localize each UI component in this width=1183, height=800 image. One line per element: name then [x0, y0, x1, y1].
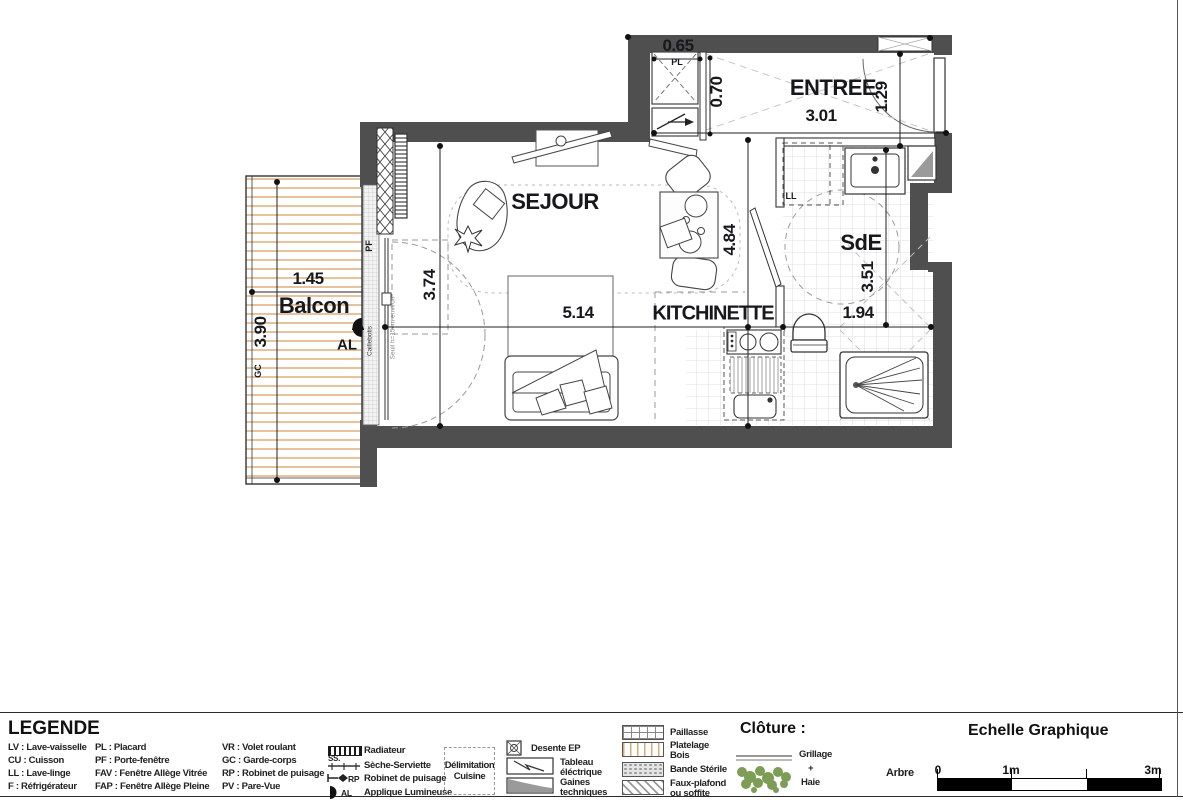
plus-label: +: [808, 764, 813, 774]
radiator-label: Radiateur: [364, 746, 405, 756]
wall-light-abbrev: AL: [341, 788, 352, 798]
dim-1-94: 1.94: [842, 303, 873, 323]
legend-item: PF : Porte-fenêtre: [95, 756, 209, 767]
legend-item: RP : Robinet de puisage: [222, 769, 324, 780]
tag-ll: LL: [786, 191, 797, 201]
scale-title: Echelle Graphique: [968, 722, 1108, 740]
legend-item: GC : Garde-corps: [222, 756, 324, 767]
tag-pf: PF: [364, 240, 374, 252]
technical-ducts-label: Gaines techniques: [560, 778, 607, 798]
page-right-border: [1177, 0, 1178, 797]
dim-0-70: 0.70: [707, 76, 727, 107]
rainwater-pipe-icon: [506, 740, 522, 756]
legend-abbrev-col2: PL : Placard PF : Porte-fenêtre FAV : Fe…: [95, 743, 209, 793]
towel-dryer-abbrev: SS.: [328, 754, 340, 764]
scale-tick: [937, 769, 938, 778]
scale-segment-black: [938, 779, 1012, 790]
wall-light-label: Applique Lumineuse: [364, 788, 452, 798]
kitchen-unit: [724, 327, 784, 420]
tag-pl: PL: [671, 57, 683, 67]
rainwater-pipe-label: Desente EP: [531, 744, 580, 754]
scale-tick: [1159, 769, 1160, 778]
legend-item: LL : Lave-linge: [8, 769, 87, 780]
floor-plan-drawing: [0, 0, 1183, 712]
room-label-balcon: Balcon: [279, 293, 349, 319]
coffee-table: [455, 181, 507, 252]
legend-title: LEGENDE: [8, 718, 100, 740]
scale-tick: [1011, 769, 1012, 778]
faux-plafond-line2: ou soffite: [670, 789, 726, 799]
dim-5-14: 5.14: [562, 303, 593, 323]
legend-item: FAV : Fenêtre Allège Vitrée: [95, 769, 209, 780]
scale-segment-white: [1012, 779, 1087, 790]
legend-item: PL : Placard: [95, 743, 209, 754]
room-label-sejour: SEJOUR: [511, 189, 598, 215]
paillasse-swatch: [622, 725, 664, 740]
radiator: [395, 134, 407, 218]
legend-item: VR : Volet roulant: [222, 743, 324, 754]
electrical-panel-icon: [506, 757, 554, 775]
bed-outline: [508, 276, 613, 364]
arbre-label: Arbre: [886, 768, 914, 778]
technical-ducts-icon: [506, 777, 554, 794]
platelage-label: Platelage Bois: [670, 741, 709, 761]
cloture-title: Clôture :: [740, 720, 806, 738]
entry-window: [878, 37, 932, 51]
dining-table: [660, 151, 718, 291]
technical-duct-box: [908, 146, 936, 180]
room-label-kitchinette: KITCHINETTE: [652, 303, 773, 326]
fence-hedge-icon: [734, 750, 796, 794]
roller-shutter-coffer: [377, 128, 393, 234]
dim-1-45: 1.45: [292, 269, 323, 289]
sofa: [505, 350, 618, 420]
dim-3-74: 3.74: [420, 269, 440, 300]
dim-4-84: 4.84: [720, 224, 740, 255]
platelage-line2: Bois: [670, 751, 709, 761]
dim-1-29: 1.29: [872, 81, 892, 112]
platelage-swatch: [622, 742, 664, 757]
legend-abbrev-col1: LV : Lave-vaisselle CU : Cuisson LL : La…: [8, 743, 87, 793]
tag-caillebotis: Caillebotis: [367, 326, 374, 356]
room-label-entree: ENTREE: [790, 75, 876, 101]
legend-abbrev-col3: VR : Volet roulant GC : Garde-corps RP :…: [222, 743, 324, 793]
floor-plan-page: SEJOUR ENTREE KITCHINETTE SdE Balcon 0.6…: [0, 0, 1183, 800]
dim-0-65: 0.65: [662, 36, 693, 56]
legend-item: FAP : Fenêtre Allège Pleine: [95, 782, 209, 793]
dim-3-01: 3.01: [805, 106, 836, 126]
electrical-panel-label: Tableau éléctrique: [560, 758, 602, 778]
faux-plafond-label: Faux-plafond ou soffite: [670, 779, 726, 799]
delimitation-line1: Délimitation: [445, 760, 495, 771]
scale-segment-black: [1087, 779, 1161, 790]
tap-icon: [326, 772, 350, 784]
kitchen-delimitation-box: Délimitation Cuisine: [444, 747, 495, 795]
paillasse-label: Paillasse: [670, 728, 708, 738]
delimitation-line2: Cuisine: [454, 771, 486, 782]
grillage-label: Grillage: [799, 750, 832, 760]
scale-0: 0: [935, 763, 942, 777]
shower: [840, 352, 928, 418]
towel-dryer-label: Sèche-Serviette: [364, 761, 431, 771]
tag-seuil: Seuil h=15cm environ: [390, 297, 397, 360]
legend-item: F : Réfrigérateur: [8, 782, 87, 793]
sink: [845, 148, 905, 194]
legend-item: LV : Lave-vaisselle: [8, 743, 87, 754]
sde-door-leaf: [750, 208, 781, 287]
legend-item: PV : Pare-Vue: [222, 782, 324, 793]
haie-label: Haie: [801, 778, 820, 788]
wall-light-icon: [326, 785, 342, 799]
window-door-swing: [392, 240, 485, 428]
bande-sterile-label: Bande Stérile: [670, 765, 727, 775]
scale-bar: [937, 778, 1162, 791]
room-label-sde: SdE: [840, 230, 881, 256]
tag-gc: GC: [253, 364, 263, 378]
tag-al: AL: [337, 337, 357, 354]
dim-3-90: 3.90: [251, 316, 271, 347]
scale-tick: [1086, 769, 1087, 778]
dim-3-51: 3.51: [858, 261, 878, 292]
legend-item: CU : Cuisson: [8, 756, 87, 767]
bande-sterile-swatch: [622, 762, 664, 777]
faux-plafond-swatch: [622, 780, 664, 795]
technical-ducts-line2: techniques: [560, 788, 607, 798]
tap-abbrev: RP: [348, 774, 359, 784]
tap-label: Robinet de puisage: [364, 774, 446, 784]
